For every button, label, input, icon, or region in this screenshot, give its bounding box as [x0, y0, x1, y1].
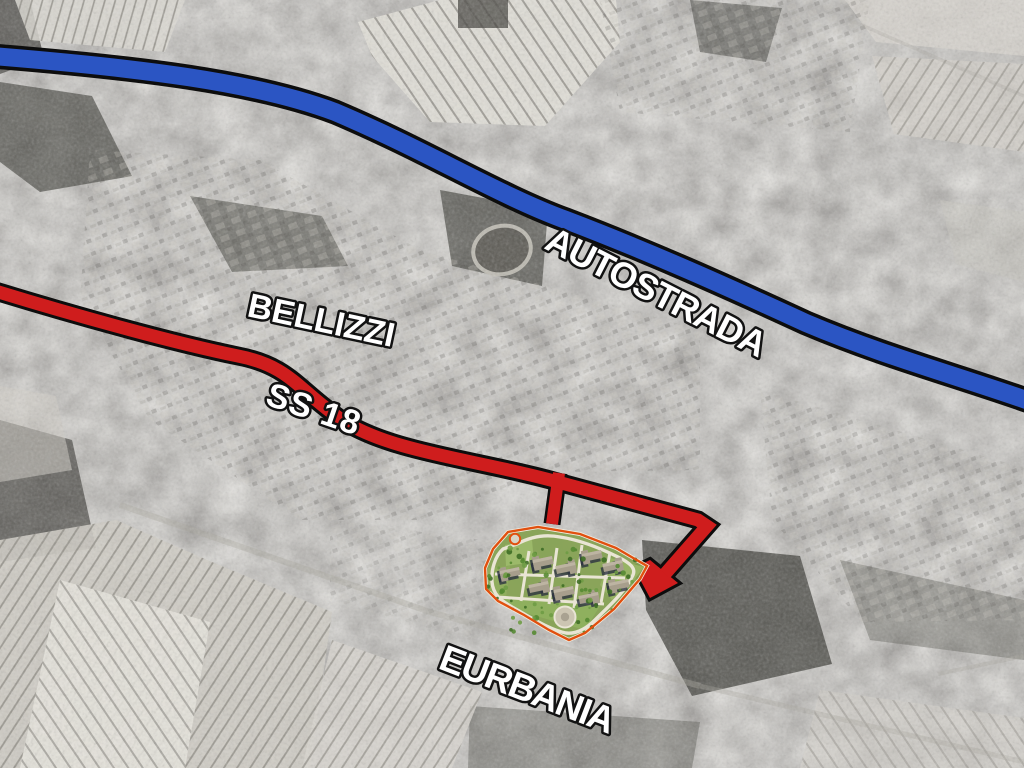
tree-icon — [504, 585, 509, 590]
tree-icon — [524, 606, 527, 609]
tree-icon — [619, 589, 622, 592]
tree-icon — [568, 557, 573, 562]
tree-icon — [626, 574, 631, 579]
tree-icon — [511, 616, 515, 620]
tree-icon — [630, 580, 634, 584]
tree-icon — [580, 556, 585, 561]
tree-icon — [588, 598, 593, 603]
tree-icon — [601, 557, 606, 562]
tree-icon — [588, 589, 592, 593]
tree-icon — [574, 548, 577, 551]
site-plaza — [555, 607, 576, 628]
tree-icon — [549, 613, 553, 617]
tree-icon — [566, 551, 569, 554]
tree-icon — [517, 554, 523, 560]
tree-icon — [575, 605, 579, 609]
tree-icon — [487, 574, 491, 578]
tree-icon — [562, 584, 565, 587]
tree-icon — [578, 573, 581, 576]
tree-icon — [522, 563, 527, 568]
tree-icon — [516, 548, 519, 551]
tree-icon — [541, 548, 544, 551]
tree-icon — [580, 588, 584, 592]
tree-icon — [521, 558, 525, 562]
plaza-center — [561, 613, 569, 621]
aerial-map: AUTOSTRADA BELLIZZI SS 18 EURBANIA — [0, 0, 1024, 768]
tree-icon — [532, 630, 537, 635]
tree-icon — [608, 577, 611, 580]
grain-overlay — [0, 0, 1024, 768]
tree-icon — [545, 571, 548, 574]
tree-icon — [607, 589, 612, 594]
tree-icon — [584, 588, 588, 592]
tree-icon — [541, 607, 543, 609]
tree-icon — [509, 628, 513, 632]
tree-icon — [518, 620, 522, 624]
tree-icon — [541, 611, 545, 615]
tree-icon — [510, 562, 513, 565]
tree-icon — [576, 620, 580, 624]
tree-icon — [508, 545, 513, 550]
map-canvas: AUTOSTRADA BELLIZZI SS 18 EURBANIA — [0, 0, 1024, 768]
tree-icon — [497, 566, 500, 569]
tree-icon — [588, 607, 590, 609]
tree-icon — [621, 570, 626, 575]
tree-icon — [532, 552, 537, 557]
tree-icon — [499, 590, 503, 594]
tree-icon — [615, 570, 619, 574]
tree-icon — [533, 602, 537, 606]
tree-icon — [585, 618, 590, 623]
tree-icon — [594, 588, 598, 592]
tree-icon — [556, 603, 559, 606]
tree-icon — [577, 579, 582, 584]
tree-icon — [615, 564, 619, 568]
tree-icon — [510, 600, 513, 603]
tree-icon — [507, 573, 511, 577]
tree-icon — [595, 605, 598, 608]
site-roundabout — [510, 534, 520, 544]
